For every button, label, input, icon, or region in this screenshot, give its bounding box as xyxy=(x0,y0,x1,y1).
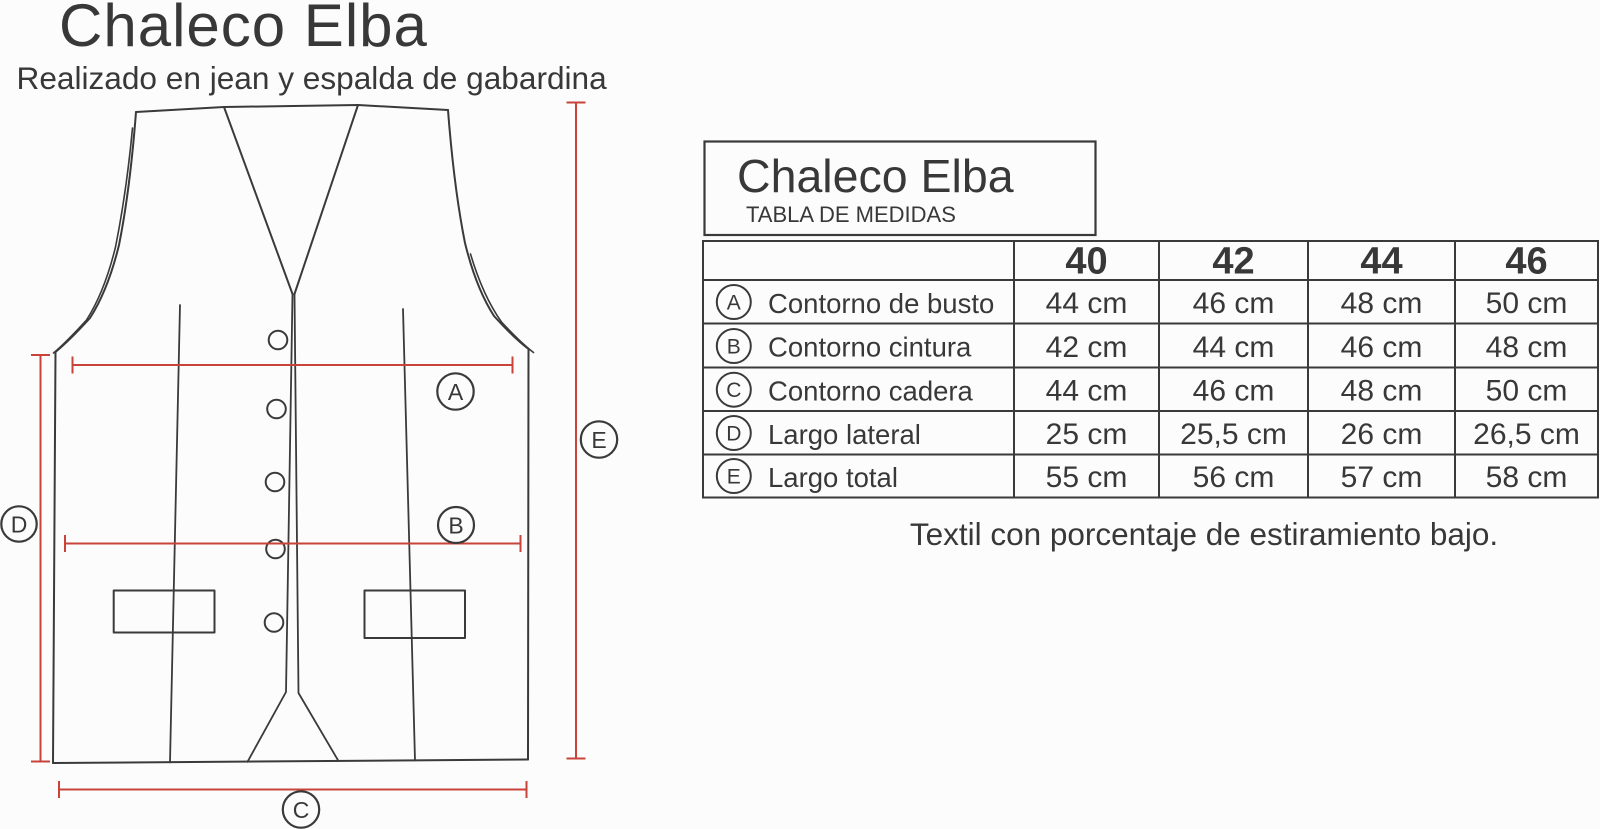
svg-text:B: B xyxy=(448,513,463,539)
svg-text:58 cm: 58 cm xyxy=(1486,461,1568,494)
svg-text:44 cm: 44 cm xyxy=(1193,331,1275,364)
svg-text:48 cm: 48 cm xyxy=(1341,287,1423,320)
svg-text:D: D xyxy=(11,512,28,538)
svg-text:46 cm: 46 cm xyxy=(1341,331,1423,364)
svg-text:C: C xyxy=(726,379,741,402)
svg-text:42: 42 xyxy=(1212,241,1254,283)
svg-text:26 cm: 26 cm xyxy=(1341,418,1423,451)
svg-text:Contorno cadera: Contorno cadera xyxy=(768,375,974,406)
svg-text:Contorno cintura: Contorno cintura xyxy=(768,332,972,363)
svg-text:50 cm: 50 cm xyxy=(1486,375,1568,408)
svg-text:A: A xyxy=(448,379,464,405)
svg-text:Chaleco Elba: Chaleco Elba xyxy=(59,0,428,59)
svg-text:44: 44 xyxy=(1360,241,1402,283)
svg-text:Largo total: Largo total xyxy=(768,462,898,493)
svg-text:A: A xyxy=(727,292,741,315)
svg-text:46: 46 xyxy=(1505,241,1547,283)
svg-text:42 cm: 42 cm xyxy=(1046,331,1128,364)
svg-text:25 cm: 25 cm xyxy=(1046,418,1128,451)
svg-text:50 cm: 50 cm xyxy=(1486,287,1568,320)
svg-text:B: B xyxy=(727,336,741,359)
svg-text:46 cm: 46 cm xyxy=(1193,375,1275,408)
svg-text:Chaleco Elba: Chaleco Elba xyxy=(737,150,1014,202)
svg-text:C: C xyxy=(293,797,310,823)
svg-text:Contorno de busto: Contorno de busto xyxy=(768,288,994,319)
svg-text:48 cm: 48 cm xyxy=(1486,331,1568,364)
svg-text:E: E xyxy=(591,427,606,453)
svg-text:26,5 cm: 26,5 cm xyxy=(1473,418,1580,451)
svg-text:25,5 cm: 25,5 cm xyxy=(1180,418,1287,451)
svg-text:Realizado en jean y espalda de: Realizado en jean y espalda de gabardina xyxy=(17,60,608,96)
svg-text:46 cm: 46 cm xyxy=(1193,287,1275,320)
svg-text:Textil con porcentaje de estir: Textil con porcentaje de estiramiento ba… xyxy=(910,516,1498,552)
svg-text:44 cm: 44 cm xyxy=(1046,287,1128,320)
svg-text:40: 40 xyxy=(1065,241,1107,283)
svg-text:D: D xyxy=(726,423,741,446)
svg-text:Largo lateral: Largo lateral xyxy=(768,419,921,450)
svg-text:48 cm: 48 cm xyxy=(1341,375,1423,408)
svg-text:TABLA DE MEDIDAS: TABLA DE MEDIDAS xyxy=(746,202,956,227)
svg-text:44 cm: 44 cm xyxy=(1046,375,1128,408)
svg-text:56 cm: 56 cm xyxy=(1193,461,1275,494)
svg-text:E: E xyxy=(727,466,741,489)
svg-text:57 cm: 57 cm xyxy=(1341,461,1423,494)
svg-text:55 cm: 55 cm xyxy=(1046,461,1128,494)
